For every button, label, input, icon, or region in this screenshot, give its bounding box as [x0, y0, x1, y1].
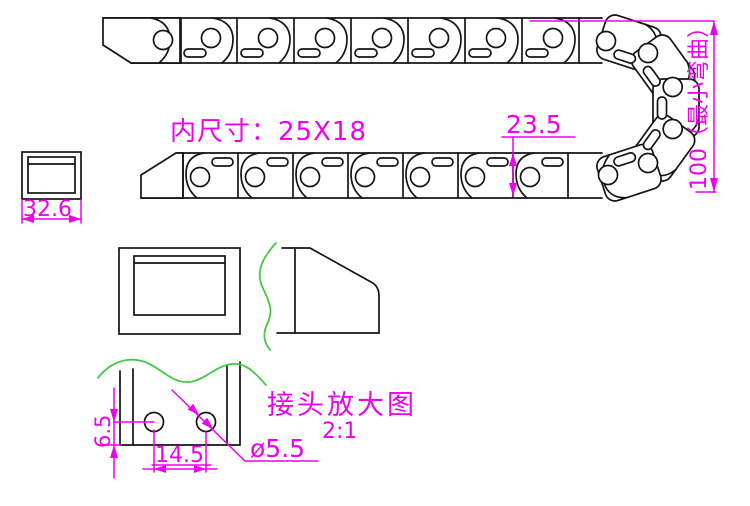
chain-link [351, 18, 404, 63]
end-width-value: 32.6 [23, 197, 72, 222]
connector-side-view [277, 248, 379, 333]
drag-chain-drawing: 内尺寸：25X18 23.5 100（最小弯曲） 32.6 6.5 14.5 ø… [0, 0, 750, 506]
chain-end-view [22, 152, 81, 199]
dim-chain-height [502, 137, 575, 196]
chain-top-row [103, 18, 602, 63]
chain-link [294, 18, 347, 63]
chain-end-link-bottom [141, 153, 183, 198]
chain-link [458, 153, 508, 198]
hole-spacing-value: 14.5 [155, 443, 204, 468]
inner-size-label: 内尺寸：25X18 [170, 117, 367, 147]
chain-link [183, 153, 233, 198]
min-bend-label: 100（最小弯曲） [687, 16, 712, 190]
detail-view-title: 接头放大图 [267, 390, 417, 421]
hole-edge-distance-value: 6.5 [91, 415, 115, 448]
chain-bottom-row [141, 153, 602, 198]
chain-link [513, 153, 563, 198]
chain-link [180, 18, 233, 63]
chain-link [408, 18, 461, 63]
detail-view-scale: 2:1 [322, 419, 357, 444]
hole-diameter-value: ø5.5 [250, 434, 305, 463]
cad-drawing-canvas: 内尺寸：25X18 23.5 100（最小弯曲） 32.6 6.5 14.5 ø… [0, 0, 750, 506]
connector-detail-view [120, 362, 240, 445]
chain-link [293, 153, 343, 198]
chain-link [465, 18, 518, 63]
chain-link [238, 153, 288, 198]
chain-link [348, 153, 398, 198]
connector-front-view [119, 248, 240, 334]
break-line-side-view [260, 243, 276, 350]
chain-height-value: 23.5 [506, 110, 562, 139]
chain-link [403, 153, 453, 198]
chain-link [522, 18, 575, 63]
chain-bend [594, 12, 699, 203]
chain-link [237, 18, 290, 63]
